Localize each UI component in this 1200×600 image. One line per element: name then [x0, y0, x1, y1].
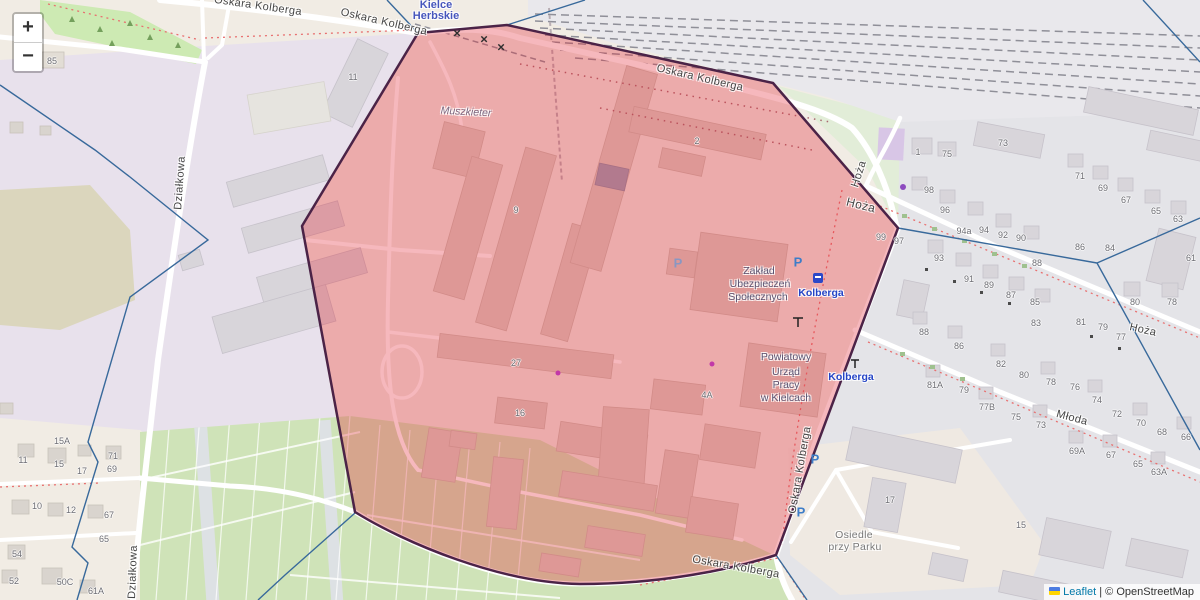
railway-station-icon	[813, 273, 823, 283]
map-canvas[interactable]: Oskara Kolberga Oskara Kolberga Oskara K…	[0, 0, 1200, 600]
openstreetmap-link[interactable]: © OpenStreetMap	[1105, 586, 1194, 598]
attribution-bar: Leaflet | © OpenStreetMap	[1044, 584, 1200, 600]
map-tiles	[0, 0, 1200, 600]
leaflet-link[interactable]: Leaflet	[1063, 586, 1096, 598]
zoom-control: + −	[12, 12, 44, 73]
zoom-in-button[interactable]: +	[14, 14, 42, 43]
attribution-separator: |	[1099, 586, 1102, 598]
ukraine-flag-icon	[1049, 587, 1060, 595]
zoom-out-button[interactable]: −	[14, 43, 42, 71]
